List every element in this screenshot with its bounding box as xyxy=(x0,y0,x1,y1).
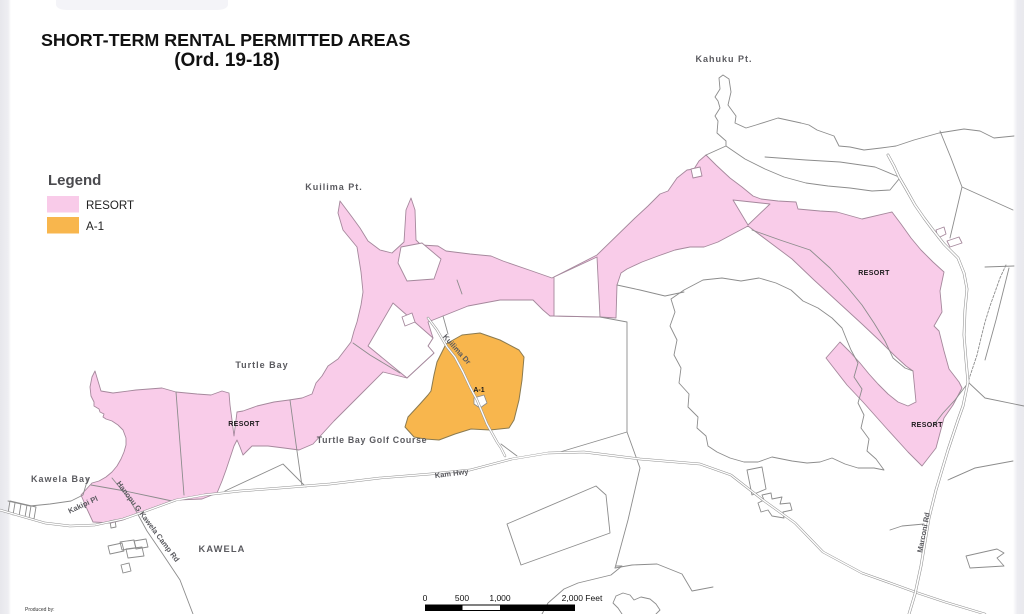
svg-text:Turtle Bay Golf Course: Turtle Bay Golf Course xyxy=(317,435,428,445)
svg-text:500: 500 xyxy=(455,593,469,603)
svg-text:RESORT: RESORT xyxy=(911,422,943,429)
svg-text:A-1: A-1 xyxy=(473,387,484,394)
svg-text:Legend: Legend xyxy=(48,172,101,189)
svg-text:SHORT-TERM RENTAL PERMITTED AR: SHORT-TERM RENTAL PERMITTED AREAS xyxy=(41,30,410,50)
svg-text:1,000: 1,000 xyxy=(489,593,511,603)
svg-text:0: 0 xyxy=(423,593,428,603)
svg-text:RESORT: RESORT xyxy=(86,199,134,212)
svg-text:RESORT: RESORT xyxy=(228,421,260,428)
svg-text:A-1: A-1 xyxy=(86,220,104,233)
svg-text:Kuilima Pt.: Kuilima Pt. xyxy=(305,182,363,192)
svg-text:Kawela Bay: Kawela Bay xyxy=(31,474,91,484)
svg-text:Turtle Bay: Turtle Bay xyxy=(235,360,288,370)
svg-text:(Ord. 19-18): (Ord. 19-18) xyxy=(174,50,280,71)
svg-text:Produced by:: Produced by: xyxy=(25,607,54,613)
svg-text:KAWELA: KAWELA xyxy=(199,544,246,554)
svg-text:2,000 Feet: 2,000 Feet xyxy=(562,593,603,603)
svg-text:Kahuku Pt.: Kahuku Pt. xyxy=(695,54,752,64)
svg-text:RESORT: RESORT xyxy=(858,270,890,277)
